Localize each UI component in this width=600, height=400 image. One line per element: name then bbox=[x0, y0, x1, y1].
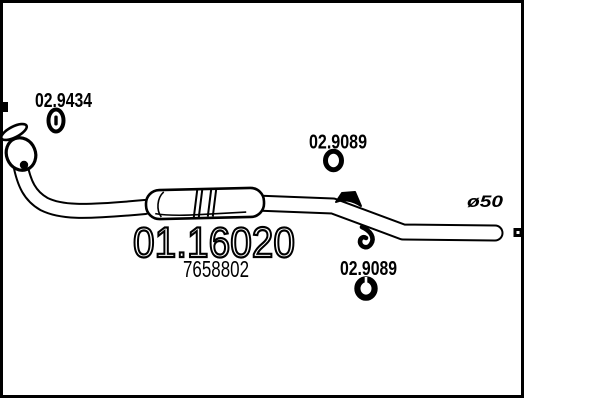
center-silencer bbox=[146, 188, 265, 220]
gasket-ring-slot bbox=[54, 116, 57, 126]
exhaust-diagram-canvas: 02.9434 02.9089 02.9089 ø50 01.16020 765… bbox=[0, 0, 600, 400]
rubber-mount-ring-top-icon bbox=[326, 151, 342, 169]
flange-bolt-dot bbox=[20, 161, 28, 169]
oem-code-label: 7658802 bbox=[183, 256, 249, 282]
hanger-code-top-label: 02.9089 bbox=[309, 132, 367, 154]
gasket-ring-icon bbox=[49, 110, 64, 132]
exhaust-technical-drawing: 02.9434 02.9089 02.9089 ø50 01.16020 765… bbox=[0, 0, 600, 400]
hanger-code-bottom-label: 02.9089 bbox=[340, 258, 397, 280]
left-border-marker bbox=[0, 102, 8, 112]
rubber-mount-ring-bottom-icon bbox=[357, 277, 374, 298]
right-border-marker-center bbox=[517, 231, 520, 234]
pipe-diameter-label: ø50 bbox=[467, 192, 504, 211]
right-border-marker bbox=[514, 228, 523, 237]
gasket-code-label: 02.9434 bbox=[35, 90, 93, 112]
